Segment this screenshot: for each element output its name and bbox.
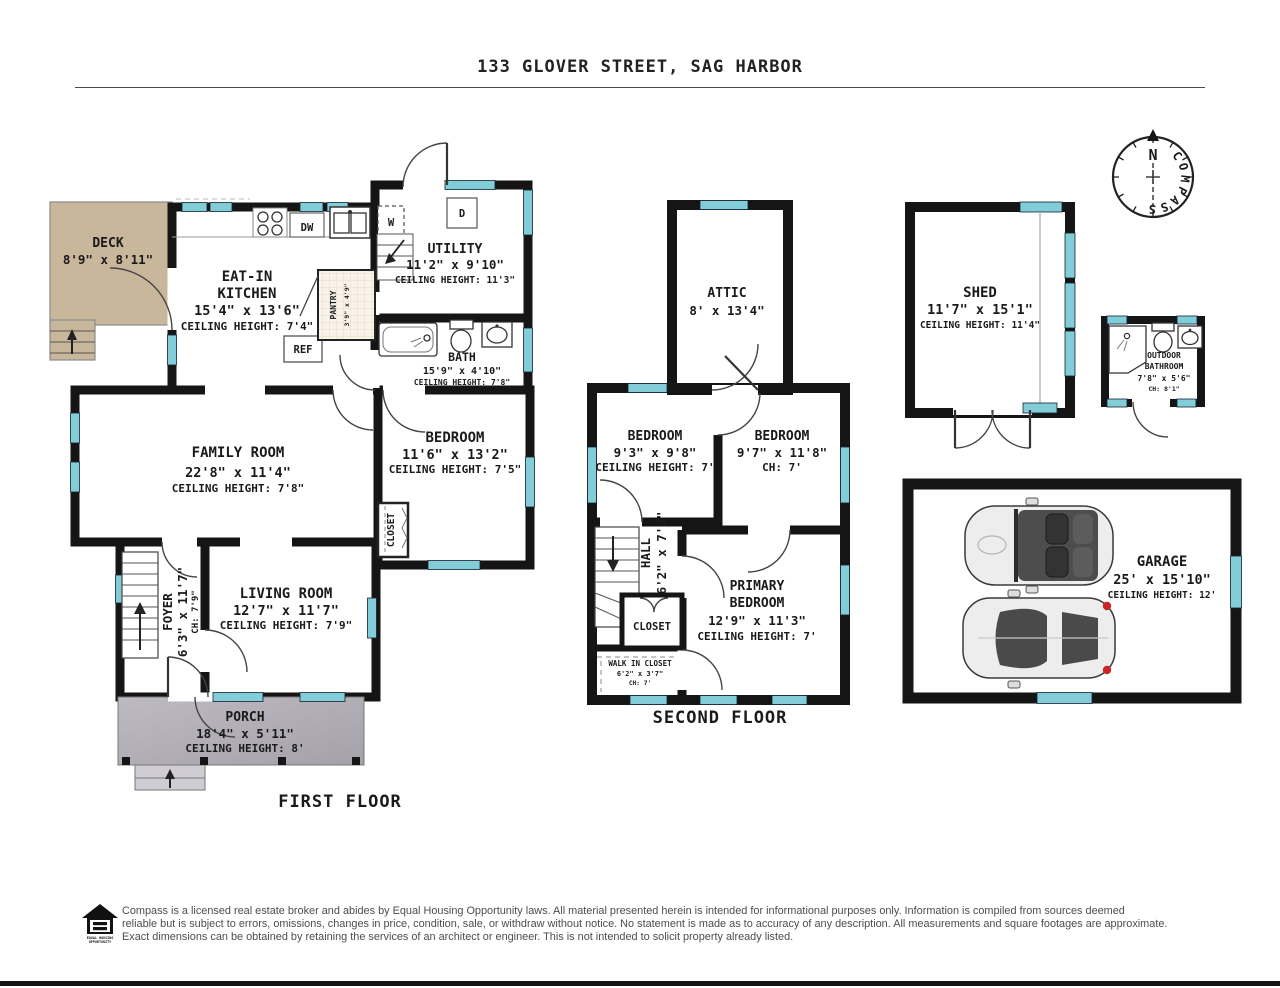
bedroom-left-dims: 9'3" x 9'8" [614,445,697,460]
window [841,565,850,615]
living-room-ceiling: CEILING HEIGHT: 7'9" [220,619,352,632]
family-room-ceiling: CEILING HEIGHT: 7'8" [172,482,304,495]
garage-ceiling: CEILING HEIGHT: 12' [1108,590,1217,601]
bath-label: BATH [448,350,476,364]
foyer-ceiling: CH: 7'9" [191,590,201,633]
window [1107,399,1127,407]
second-floor-label: SECOND FLOOR [653,708,788,728]
sink-icon [330,207,370,238]
dryer-label: D [459,208,465,220]
window [1231,556,1242,608]
toilet-icon [1152,323,1174,352]
refrigerator-box: REF [284,336,322,362]
window [210,203,232,212]
equal-housing-logo-icon: EQUAL HOUSING OPPORTUNITY [80,903,120,945]
sports-car-icon [963,590,1115,688]
first-floor-plan: DW REF PANTRY 3'9" x 4'9" [50,143,535,812]
window [1037,693,1092,704]
foyer-dims: 6'3" x 11'7" [175,567,190,657]
living-door-opening [201,630,210,672]
disclaimer: Compass is a licensed real estate broker… [122,905,1197,945]
living-room-label: LIVING ROOM [240,586,333,602]
window [300,693,345,702]
disclaimer-line: reliable but is subject to errors, omiss… [122,918,1197,931]
utility-label: UTILITY [428,242,483,257]
bedroom-right-label: BEDROOM [755,429,810,444]
family-room-label: FAMILY ROOM [192,445,285,461]
compass-north-label: N [1148,146,1157,164]
hall-label: HALL [638,537,653,568]
window [182,203,207,212]
window [628,384,667,393]
shed-plan: SHED 11'7" x 15'1" CEILING HEIGHT: 11'4" [910,202,1075,448]
window [368,598,377,638]
second-floor-plan: CLOSET WALK IN CLOSET 6'2" x 3'7" CH: 7' [588,201,850,729]
porch-ceiling: CEILING HEIGHT: 8' [185,742,304,755]
window [841,447,850,503]
bedroom-left-label: BEDROOM [628,429,683,444]
stove-icon [253,208,287,237]
closet-second-label: CLOSET [633,621,671,633]
disclaimer-line: Compass is a licensed real estate broker… [122,905,1197,918]
garage-label: GARAGE [1137,554,1188,570]
eho-text-2: OPPORTUNITY [89,940,112,944]
first-floor-label: FIRST FLOOR [278,792,402,812]
primary-label-1: PRIMARY [730,579,785,594]
bedroom-right-ceiling: CH: 7' [762,461,802,474]
outdoor-bath-door-opening [1132,399,1170,407]
pantry-label: PANTRY [329,290,338,319]
window [524,190,533,235]
window [213,693,263,702]
bedroom-first-dims: 11'6" x 13'2" [402,447,508,463]
garage-dims: 25' x 15'10" [1113,572,1211,588]
window [772,696,807,705]
pantry-dims: 3'9" x 4'9" [343,283,351,326]
door-arc [403,143,447,187]
deck-label: DECK [92,236,123,251]
primary-dims: 12'9" x 11'3" [708,613,806,628]
kitchen-family-opening [205,386,265,395]
floorplan-drawing: DW REF PANTRY 3'9" x 4'9" [0,0,1280,988]
window [700,201,748,210]
living-family-opening [240,533,292,547]
primary-ceiling: CEILING HEIGHT: 7' [697,630,816,643]
outdoor-bath-label-1: OUTDOOR [1147,351,1181,360]
outdoor-bath-dims: 7'8" x 5'6" [1138,374,1191,383]
door-arc [682,650,722,690]
bedroom-left-door-opening [600,518,642,527]
kitchen-label-1: EAT-IN [222,269,273,285]
living-room-dims: 12'7" x 11'7" [233,603,339,619]
bedroom-left-ceiling: CEILING HEIGHT: 7' [595,461,714,474]
convertible-car-icon [965,498,1113,593]
window [1065,233,1075,278]
hall-door-opening [678,556,687,598]
door-arc [682,556,724,598]
window [1177,399,1196,407]
window [71,462,80,492]
walkin-door-opening [678,650,687,690]
bath-fixtures [379,320,512,356]
deck-area [50,202,172,360]
door-arc [333,390,373,430]
window [445,181,495,190]
shed-dims: 11'7" x 15'1" [927,302,1033,318]
window [300,203,323,212]
bottom-rule [0,981,1280,986]
walkin-dims: 6'2" x 3'7" [617,670,663,678]
toilet-icon [450,320,473,352]
window [1023,403,1057,413]
bath-dims: 15'9" x 4'10" [423,366,501,377]
utility-exterior-door-opening [403,181,447,190]
door-arc [1133,402,1168,437]
garage-plan: GARAGE 25' x 15'10" CEILING HEIGHT: 12' [908,484,1242,704]
window [700,696,737,705]
porch-dims: 18'4" x 5'11" [196,726,294,741]
foyer-label: FOYER [160,593,175,631]
kitchen-label-2: KITCHEN [217,286,276,302]
bathtub-icon [379,323,437,356]
family-room-dims: 22'8" x 11'4" [185,465,291,481]
shed-label: SHED [963,285,997,301]
window [1065,283,1075,328]
attic-dims: 8' x 13'4" [689,303,764,318]
window [524,328,533,372]
shed-ceiling: CEILING HEIGHT: 11'4" [920,320,1040,331]
window [428,561,480,570]
bedroom-first-label: BEDROOM [425,430,484,446]
window [168,335,177,365]
washer-label: W [388,217,395,229]
window [630,696,667,705]
walkin-label: WALK IN CLOSET [608,659,672,668]
window [526,457,535,507]
primary-label-2: BEDROOM [730,596,785,611]
closet-first: CLOSET [378,503,408,557]
kitchen-ceiling: CEILING HEIGHT: 7'4" [181,320,313,333]
hall-dims: 6'2" x 7'3" [654,512,669,595]
north-arrow-icon [1147,129,1159,141]
window [588,447,597,503]
floorplan-page: 133 GLOVER STREET, SAG HARBOR [0,0,1280,988]
door-arc [748,530,790,572]
utility-ceiling: CEILING HEIGHT: 11'3" [395,275,515,286]
foyer-stairs-icon [122,552,158,658]
disclaimer-line: Exact dimensions can be obtained by reta… [122,931,1197,944]
attic-label: ATTIC [707,286,746,301]
outdoor-bathroom-plan: OUTDOOR BATHROOM 7'8" x 5'6" CH: 8'1" [1105,316,1202,437]
washer-box: W [378,206,404,238]
bath-ceiling: CEILING HEIGHT: 7'8" [414,378,510,387]
deck-dims: 8'9" x 8'11" [63,252,153,267]
window [1020,202,1062,212]
door-arc [340,355,375,390]
sink-icon [482,322,512,347]
bedroom-first-ceiling: CEILING HEIGHT: 7'5" [389,463,521,476]
shower-icon [1109,326,1146,373]
kitchen-fixtures: DW REF PANTRY 3'9" x 4'9" [172,199,375,362]
outdoor-bath-ceiling: CH: 8'1" [1148,385,1179,393]
kitchen-dims: 15'4" x 13'6" [194,303,300,319]
family-door-opening [333,386,373,395]
porch-label: PORCH [225,710,264,725]
closet-first-label: CLOSET [386,513,397,548]
foyer-family-opening [162,533,197,547]
door-arc [383,390,425,432]
dryer-box: D [447,198,477,228]
sink-icon [1178,326,1202,348]
refrigerator-label: REF [294,344,313,356]
primary-door-opening [748,526,790,535]
walkin-ceiling: CH: 7' [629,680,651,687]
bedroom-right-dims: 9'7" x 11'8" [737,445,827,460]
window [1107,316,1127,324]
walk-in-closet: WALK IN CLOSET 6'2" x 3'7" CH: 7' [597,657,678,692]
closet-second: CLOSET [622,595,682,648]
bedroom-right-door-opening [714,393,723,435]
window [1065,331,1075,376]
window [1177,316,1197,324]
window [71,413,80,443]
dishwasher-box: DW [290,213,324,237]
door-arc [205,630,247,672]
door-arc [600,480,642,522]
utility-dims: 11'2" x 9'10" [406,257,504,272]
dishwasher-label: DW [301,222,314,234]
outdoor-bath-label-2: BATHROOM [1145,362,1184,371]
compass-icon: N COMPASS [1112,129,1194,218]
bath-door-opening [371,350,380,388]
